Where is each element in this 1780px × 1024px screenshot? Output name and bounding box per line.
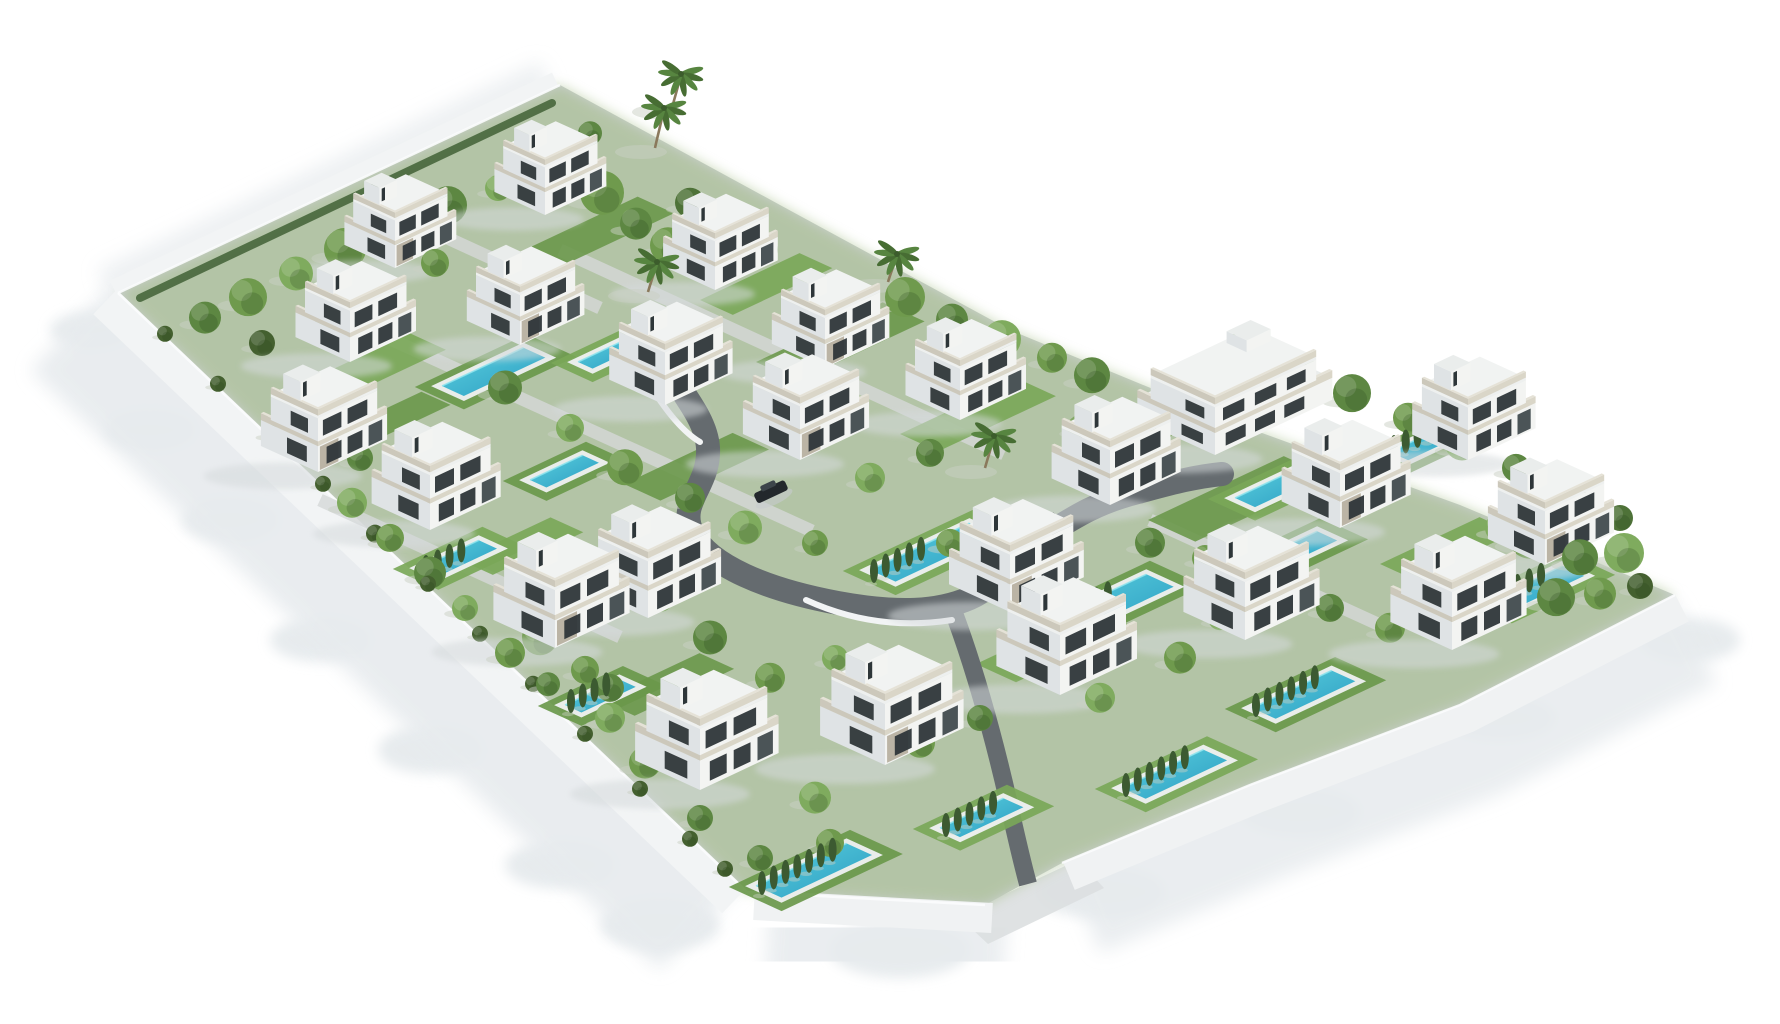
cypress-shadow (777, 883, 789, 887)
canopy-shade (505, 649, 522, 666)
window-glazing (868, 661, 872, 679)
canopy-shade (460, 605, 475, 620)
building-shadow (1329, 640, 1500, 669)
canopy-shade (637, 787, 646, 796)
palm-crown (678, 71, 684, 77)
box-right-face (960, 359, 962, 366)
cypress-shadow (597, 695, 609, 699)
canopy-shade (347, 499, 364, 516)
cypress-foliage (882, 553, 890, 577)
window-glazing (1043, 594, 1047, 612)
box-right-face (1452, 581, 1455, 589)
canopy-shade (898, 292, 921, 315)
cypress-shadow (562, 712, 574, 716)
cypress-shadow (812, 866, 824, 870)
cypress-foliage (870, 559, 878, 583)
box-right-face (350, 301, 352, 308)
box-right-face (1060, 624, 1063, 632)
cypress-shadow (1152, 779, 1164, 783)
cypress-shadow (586, 701, 598, 705)
canopy-shade (755, 855, 770, 870)
cypress-foliage (942, 813, 950, 837)
box-right-face (430, 465, 433, 473)
box-right-face (648, 551, 651, 559)
cypress-foliage (1276, 682, 1284, 706)
box-right-face (555, 579, 558, 587)
cypress-shadow (972, 819, 984, 823)
palm-crown (894, 251, 900, 257)
canopy-shade (865, 474, 882, 491)
cypress-foliage (591, 678, 599, 702)
cypress-shadow (937, 836, 949, 840)
canopy-shade (241, 292, 263, 314)
cypress-foliage (829, 838, 837, 862)
cypress-shadow (1176, 768, 1188, 772)
cypress-shadow (865, 582, 877, 586)
cypress-foliage (989, 791, 997, 815)
cypress-shadow (1282, 699, 1294, 703)
window-glazing (1229, 542, 1233, 559)
cypress-foliage (1264, 687, 1272, 711)
cypress-foliage (1311, 665, 1319, 689)
window-glazing (650, 316, 654, 332)
box-right-face (1340, 463, 1343, 471)
cypress-shadow (877, 576, 889, 580)
cypress-foliage (758, 871, 766, 895)
cypress-foliage (917, 537, 925, 561)
cypress-foliage (1287, 676, 1295, 700)
canopy-shade (385, 534, 401, 550)
building-shadow (1122, 630, 1293, 659)
box-right-face (1468, 398, 1470, 405)
cypress-foliage (905, 542, 913, 566)
window-glazing (683, 686, 687, 704)
cypress-foliage (894, 548, 902, 572)
cypress-foliage (770, 865, 778, 889)
canopy-shade (1615, 515, 1630, 530)
cypress-shadow (1247, 716, 1259, 720)
canopy-shade (1574, 553, 1595, 574)
canopy-shade (830, 655, 845, 670)
cypress-foliage (817, 843, 825, 867)
canopy-shade (739, 523, 759, 543)
canopy-shade (810, 540, 825, 555)
canopy-shade (1174, 654, 1193, 673)
cypress-shadow (1141, 785, 1153, 789)
canopy-shade (1617, 548, 1640, 571)
canopy-shade (687, 837, 696, 846)
canopy-shade (199, 314, 218, 333)
canopy-shade (320, 482, 329, 491)
building-shadow (755, 754, 935, 784)
canopy-shade (544, 681, 558, 695)
building-shadow (204, 463, 362, 489)
cypress-foliage (1134, 767, 1142, 791)
canopy-shade (695, 815, 710, 830)
cypress-foliage (457, 538, 465, 562)
canopy-shade (630, 220, 649, 239)
window-glazing (1453, 371, 1457, 387)
cypress-foliage (1299, 671, 1307, 695)
cypress-shadow (452, 561, 464, 565)
cypress-foliage (782, 860, 790, 884)
cypress-shadow (765, 888, 777, 892)
palm-shadow (945, 465, 997, 479)
villa-development-aerial-render (0, 0, 1780, 1024)
box-right-face (700, 718, 703, 726)
building-shadow (444, 207, 584, 230)
canopy-shade (257, 340, 272, 355)
cypress-shadow (574, 706, 586, 710)
box-right-face (545, 159, 547, 166)
canopy-shade (1635, 583, 1650, 598)
box-right-face (1215, 397, 1218, 405)
box-right-face (825, 309, 827, 316)
cypress-shadow (1117, 796, 1129, 800)
box-right-face (885, 693, 888, 701)
canopy-shade (355, 455, 370, 470)
canopy-shade (1145, 539, 1162, 556)
box-right-face (520, 286, 522, 293)
cypress-shadow (788, 877, 800, 881)
cypress-foliage (579, 683, 587, 707)
canopy-shade (565, 424, 581, 440)
window-glazing (1095, 412, 1099, 429)
window-glazing (632, 522, 636, 539)
canopy-shade (1095, 694, 1112, 711)
window-glazing (1530, 474, 1534, 490)
cypress-foliage (966, 802, 974, 826)
window-glazing (785, 369, 789, 385)
window-glazing (701, 207, 704, 222)
canopy-shade (1385, 624, 1402, 641)
canopy-shade (809, 794, 828, 813)
cypress-shadow (1164, 774, 1176, 778)
cypress-shadow (889, 571, 901, 575)
window-glazing (946, 333, 950, 348)
cypress-foliage (954, 807, 962, 831)
palm-crown (654, 259, 660, 265)
canopy-shade (425, 582, 434, 591)
cypress-foliage (567, 689, 575, 713)
cypress-foliage (1122, 773, 1130, 797)
box-right-face (715, 232, 717, 239)
canopy-shade (1325, 604, 1341, 620)
cypress-shadow (824, 861, 836, 865)
cypress-shadow (900, 565, 912, 569)
aerial-render-page (0, 0, 1780, 1024)
canopy-shade (619, 463, 640, 484)
window-glazing (1436, 552, 1440, 569)
window-glazing (506, 260, 510, 275)
window-glazing (1325, 435, 1329, 452)
cypress-foliage (805, 849, 813, 873)
window-glazing (336, 275, 340, 290)
box-right-face (1245, 571, 1248, 579)
cypress-foliage (1402, 429, 1410, 453)
cypress-foliage (446, 544, 454, 568)
cypress-shadow (961, 825, 973, 829)
box-right-face (800, 396, 802, 403)
cypress-shadow (912, 560, 924, 564)
box-right-face (665, 343, 667, 350)
cypress-shadow (1294, 694, 1306, 698)
cypress-foliage (1146, 762, 1154, 786)
canopy-shade (1086, 371, 1107, 392)
box-right-face (318, 408, 320, 415)
palm-crown (991, 433, 997, 439)
building-shadow (413, 337, 561, 362)
canopy-shade (499, 383, 519, 403)
window-glazing (415, 437, 419, 454)
canopy-shade (1549, 592, 1571, 614)
cypress-foliage (1252, 693, 1260, 717)
window-glazing (303, 381, 307, 397)
cypress-foliage (977, 796, 985, 820)
box-right-face (1545, 501, 1547, 508)
canopy-shade (704, 633, 724, 653)
canopy-shade (215, 382, 224, 391)
canopy-shade (1345, 388, 1367, 410)
cypress-foliage (793, 854, 801, 878)
box-right-face (1010, 544, 1013, 552)
window-glazing (811, 283, 815, 298)
cypress-shadow (1259, 710, 1271, 714)
canopy-shade (605, 714, 622, 731)
canopy-shade (685, 494, 702, 511)
building-shadow (686, 451, 844, 477)
window-glazing (532, 134, 535, 148)
box-right-face (395, 212, 397, 219)
window-glazing (382, 187, 385, 201)
cypress-shadow (753, 894, 765, 898)
palm-crown (661, 105, 667, 111)
cypress-shadow (984, 814, 996, 818)
cypress-foliage (1181, 745, 1189, 769)
canopy-shade (975, 715, 990, 730)
cypress-shadow (949, 830, 961, 834)
cypress-foliage (1169, 751, 1177, 775)
window-glazing (994, 515, 998, 532)
cypress-shadow (800, 872, 812, 876)
cypress-foliage (1157, 756, 1165, 780)
cypress-shadow (1409, 447, 1421, 451)
canopy-shade (162, 332, 171, 341)
canopy-shade (594, 187, 620, 213)
canopy-shade (582, 732, 591, 741)
box-right-face (1110, 440, 1113, 448)
window-glazing (539, 550, 543, 567)
canopy-shade (1047, 354, 1064, 371)
canopy-shade (1594, 590, 1613, 609)
canopy-shade (925, 449, 941, 465)
cypress-shadow (1129, 790, 1141, 794)
building-shadow (570, 779, 750, 809)
palm-shadow (615, 145, 667, 159)
canopy-shade (430, 259, 446, 275)
cypress-shadow (1306, 688, 1318, 692)
wall-cast-shadow (767, 938, 1005, 951)
cypress-foliage (602, 672, 610, 696)
canopy-shade (722, 867, 731, 876)
cypress-shadow (1271, 705, 1283, 709)
